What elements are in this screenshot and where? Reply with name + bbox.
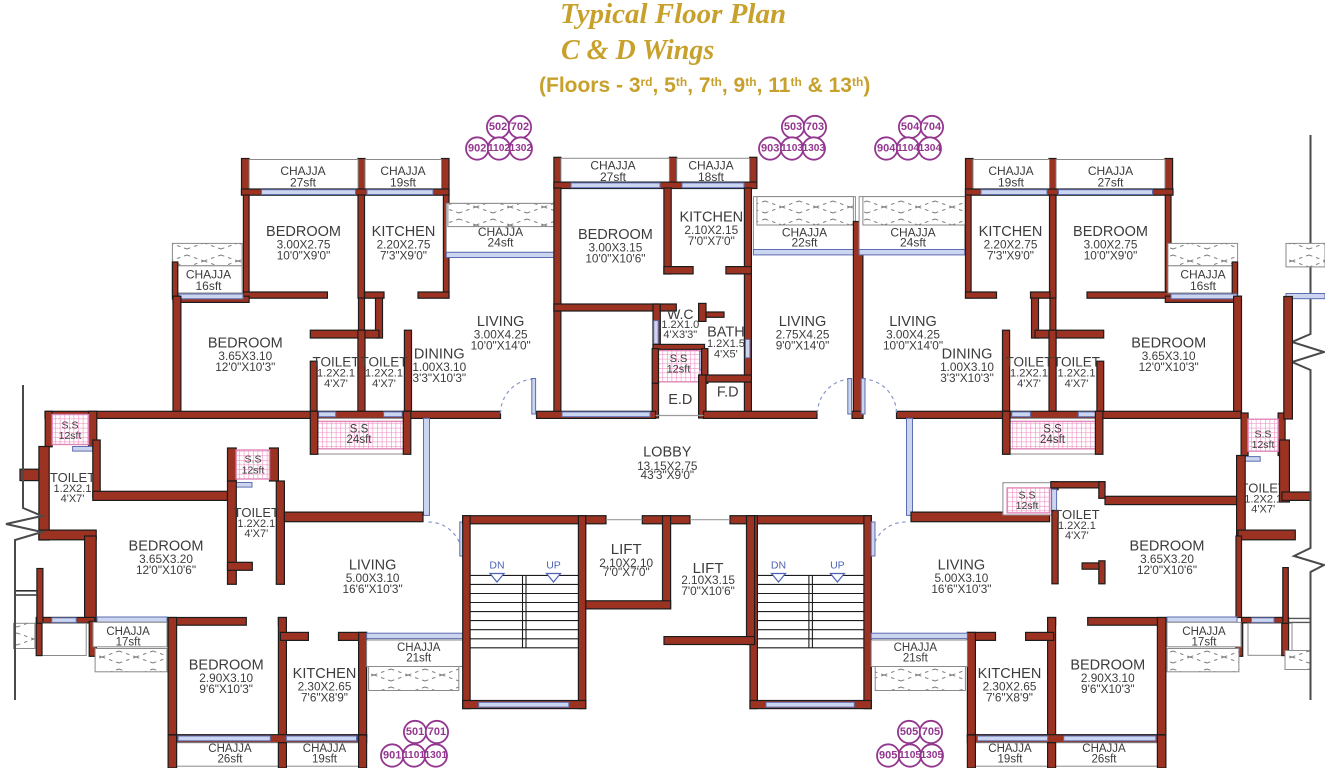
svg-text:4'X7': 4'X7': [1065, 378, 1089, 390]
svg-text:12'0"X10'6": 12'0"X10'6": [136, 563, 196, 577]
svg-text:12'0"X10'6": 12'0"X10'6": [1137, 563, 1197, 577]
svg-text:12sft: 12sft: [59, 430, 82, 442]
svg-text:UP: UP: [830, 560, 845, 572]
svg-text:901: 901: [383, 750, 401, 762]
svg-text:10'0"X14'0": 10'0"X14'0": [471, 339, 531, 353]
svg-text:21sft: 21sft: [406, 653, 432, 665]
svg-text:17sft: 17sft: [116, 637, 142, 649]
svg-text:10'0"X9'0": 10'0"X9'0": [277, 249, 331, 263]
svg-text:E.D: E.D: [668, 392, 692, 408]
svg-text:16'6"X10'3": 16'6"X10'3": [931, 582, 991, 596]
svg-text:4'X7': 4'X7': [1017, 378, 1041, 390]
svg-text:19sft: 19sft: [390, 176, 417, 190]
svg-text:Typical Floor Plan: Typical Floor Plan: [560, 0, 786, 30]
svg-text:7'6"X8'9": 7'6"X8'9": [986, 691, 1033, 705]
svg-text:4'X7': 4'X7': [372, 378, 396, 390]
svg-text:7'6"X8'9": 7'6"X8'9": [301, 691, 348, 705]
svg-text:43'3"X9'0": 43'3"X9'0": [641, 468, 695, 482]
svg-text:F.D: F.D: [717, 385, 739, 401]
svg-text:10'0"X9'0": 10'0"X9'0": [1084, 249, 1138, 263]
svg-text:902: 902: [468, 143, 486, 155]
svg-text:DN: DN: [489, 560, 504, 572]
svg-text:12sft: 12sft: [242, 465, 265, 477]
svg-text:9'6"X10'3": 9'6"X10'3": [1081, 682, 1135, 696]
svg-text:1104: 1104: [897, 143, 919, 154]
svg-text:4'X5': 4'X5': [714, 349, 738, 361]
svg-text:27sft: 27sft: [290, 176, 317, 190]
svg-text:16sft: 16sft: [1190, 279, 1217, 293]
svg-text:10'0"X10'6": 10'0"X10'6": [585, 252, 645, 266]
svg-text:16sft: 16sft: [195, 279, 222, 293]
svg-text:1302: 1302: [509, 143, 532, 154]
svg-text:703: 703: [806, 121, 824, 133]
svg-text:7'3"X9'0": 7'3"X9'0": [987, 249, 1034, 263]
svg-text:UP: UP: [546, 560, 561, 572]
svg-text:1304: 1304: [918, 143, 941, 154]
svg-text:4'X7': 4'X7': [1251, 504, 1275, 516]
svg-text:4'X3'3": 4'X3'3": [663, 329, 697, 341]
svg-text:4'X7': 4'X7': [244, 528, 268, 540]
svg-text:9'0"X14'0": 9'0"X14'0": [776, 339, 830, 353]
svg-text:17sft: 17sft: [1192, 637, 1218, 649]
svg-text:19sft: 19sft: [998, 176, 1025, 190]
svg-text:27sft: 27sft: [1097, 176, 1124, 190]
svg-text:905: 905: [879, 750, 897, 762]
svg-text:7'0"X7'0": 7'0"X7'0": [603, 565, 650, 579]
svg-text:26sft: 26sft: [218, 754, 244, 766]
svg-text:C & D Wings: C & D Wings: [561, 35, 714, 66]
svg-text:704: 704: [923, 121, 942, 133]
svg-text:7'3"X9'0": 7'3"X9'0": [380, 249, 427, 263]
svg-text:503: 503: [784, 121, 802, 133]
svg-text:1105: 1105: [899, 750, 921, 761]
svg-text:903: 903: [761, 143, 779, 155]
svg-text:4'X7': 4'X7': [1065, 530, 1089, 542]
svg-text:9'6"X10'3": 9'6"X10'3": [199, 682, 253, 696]
svg-text:7'0"X7'0": 7'0"X7'0": [688, 234, 735, 248]
svg-text:502: 502: [489, 121, 507, 133]
svg-text:12'0"X10'3": 12'0"X10'3": [1139, 360, 1199, 374]
svg-text:22sft: 22sft: [791, 236, 818, 250]
svg-text:1103: 1103: [781, 143, 803, 154]
svg-text:1301: 1301: [424, 750, 447, 761]
svg-text:12sft: 12sft: [1016, 500, 1039, 512]
svg-text:3'3"X10'3": 3'3"X10'3": [940, 371, 994, 385]
svg-text:501: 501: [406, 726, 424, 738]
svg-text:(Floors - 3rd, 5th, 7th, 9th,: (Floors - 3rd, 5th, 7th, 9th, 11th & 13t…: [539, 74, 870, 97]
svg-text:1305: 1305: [920, 750, 943, 761]
svg-text:904: 904: [877, 143, 896, 155]
svg-text:24sft: 24sft: [1040, 434, 1066, 446]
svg-text:12'0"X10'3": 12'0"X10'3": [215, 360, 275, 374]
svg-text:12sft: 12sft: [667, 364, 691, 376]
svg-text:1303: 1303: [802, 143, 825, 154]
svg-text:3'3"X10'3": 3'3"X10'3": [413, 371, 467, 385]
svg-text:19sft: 19sft: [998, 754, 1024, 766]
svg-text:16'6"X10'3": 16'6"X10'3": [343, 582, 403, 596]
svg-text:505: 505: [900, 726, 918, 738]
svg-text:26sft: 26sft: [1092, 754, 1118, 766]
svg-text:21sft: 21sft: [903, 653, 929, 665]
svg-text:24sft: 24sft: [487, 236, 514, 250]
svg-text:1102: 1102: [488, 143, 510, 154]
svg-text:4'X7': 4'X7': [324, 378, 348, 390]
svg-text:19sft: 19sft: [312, 754, 338, 766]
svg-text:24sft: 24sft: [900, 236, 927, 250]
svg-text:702: 702: [511, 121, 529, 133]
svg-text:705: 705: [922, 726, 940, 738]
svg-text:DN: DN: [771, 560, 786, 572]
svg-text:504: 504: [901, 121, 920, 133]
svg-text:1101: 1101: [403, 750, 425, 761]
svg-text:12sft: 12sft: [1252, 439, 1275, 451]
svg-text:7'0"X10'6": 7'0"X10'6": [681, 584, 735, 598]
svg-text:701: 701: [428, 726, 446, 738]
svg-text:24sft: 24sft: [347, 434, 373, 446]
svg-text:4'X7': 4'X7': [61, 493, 85, 505]
svg-text:10'0"X14'0": 10'0"X14'0": [883, 339, 943, 353]
